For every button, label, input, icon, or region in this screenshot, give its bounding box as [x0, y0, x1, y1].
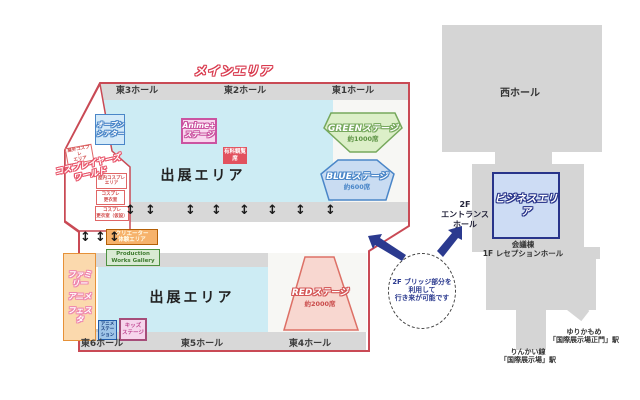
- red-stage-label: REDステージ: [270, 288, 370, 299]
- bridge-note-circle: 2F ブリッジ部分を 利用して 行き来が可能です: [388, 253, 456, 329]
- family-festa-line2: アニメ: [68, 292, 92, 301]
- indoor-cosplay-line2: エリア: [105, 181, 119, 186]
- two-way-arrow-icon: ↕: [109, 231, 120, 244]
- west-hall-label: 西ホール: [470, 88, 570, 100]
- station-leg-center: [516, 310, 546, 350]
- green-stage-seats: 約1000席: [313, 136, 413, 144]
- business-area-box: ビジネスエリア: [492, 172, 560, 239]
- two-way-arrow-icon: ↕: [211, 204, 222, 217]
- exhibit-block-upper: [98, 100, 333, 202]
- blue-stage-label: BLUEステージ: [307, 172, 407, 183]
- two-way-arrow-icon: ↕: [95, 231, 106, 244]
- main-area-label: メインエリア: [183, 64, 283, 78]
- two-way-arrow-icon: ↕: [145, 204, 156, 217]
- business-area-label: ビジネスエリア: [494, 193, 558, 217]
- two-way-arrow-icon: ↕: [325, 204, 336, 217]
- paid-seat-badge: 有料観覧席: [223, 147, 247, 164]
- open-theater-label-line1: オープン: [96, 121, 124, 129]
- exhibit-area-upper-label: 出展エリア: [153, 168, 253, 185]
- entrance-line3: ホール: [438, 220, 492, 230]
- reception-line2: 1F レセプションホール: [478, 249, 568, 258]
- hall-label-east2: 東2ホール: [215, 86, 275, 97]
- conference-block: [486, 252, 596, 310]
- reception-hall-label: 会議棟 1F レセプションホール: [478, 240, 568, 258]
- family-festa-line1: ファミリー: [64, 270, 95, 288]
- two-way-arrow-icon: ↕: [125, 204, 136, 217]
- cosplay-dressing-room-box: コスプレ 更衣室: [96, 190, 125, 205]
- cosplay-dressing-room2-box: コスプレ 更衣室（仮設）: [95, 206, 129, 221]
- venue-map: メインエリア 東3ホール 東2ホール 東1ホール 東6ホール 東5ホール 東4ホ…: [0, 0, 640, 400]
- entrance-line1: 2F: [438, 200, 492, 210]
- exhibit-area-lower-label: 出展エリア: [142, 290, 242, 307]
- family-anime-festa-box: ファミリー アニメ フェスタ: [63, 253, 96, 341]
- two-way-arrow-icon: ↕: [80, 231, 91, 244]
- production-works-gallery-box: Production Works Gallery: [106, 249, 160, 266]
- dressing-room2-line2: 更衣室（仮設）: [96, 214, 128, 219]
- dressing-room-line2: 更衣室: [104, 198, 118, 203]
- west-connector: [495, 152, 552, 164]
- hall-label-east1: 東1ホール: [323, 86, 383, 97]
- two-way-arrow-icon: ↕: [185, 204, 196, 217]
- yurikamome-line2: 「国際展示場正門」駅: [548, 336, 620, 344]
- yurikamome-station-label: ゆりかもめ 「国際展示場正門」駅: [548, 328, 620, 345]
- two-way-arrow-icon: ↕: [239, 204, 250, 217]
- kids-stage-line2: ステージ: [122, 330, 144, 336]
- anime-stage-label-line2: ステージ: [184, 131, 214, 140]
- blue-stage-seats: 約600席: [307, 184, 407, 192]
- kids-stage-box: キッズ ステージ: [119, 318, 147, 341]
- hall-label-east5: 東5ホール: [172, 339, 232, 350]
- open-theater-label-line2: シアター: [96, 130, 124, 138]
- family-festa-line3: フェスタ: [64, 306, 95, 324]
- open-theater-box: オープン シアター: [95, 114, 125, 145]
- hall-label-east3: 東3ホール: [107, 86, 167, 97]
- anime-station-line2: ステーション: [99, 327, 116, 337]
- hall-label-east6: 東6ホール: [72, 339, 132, 350]
- rinkai-station-label: りんかい線 「国際展示場」駅: [490, 348, 566, 365]
- green-stage-label: GREENステージ: [313, 124, 413, 135]
- entrance-hall-label: 2F エントランス ホール: [438, 200, 492, 230]
- conference-notch: [584, 247, 600, 259]
- two-way-arrow-icon: ↕: [267, 204, 278, 217]
- entrance-line2: エントランス: [438, 210, 492, 220]
- anime-stage-box: Anime+ ステージ: [181, 118, 217, 144]
- bridge-note-line3: 行き来が可能です: [395, 295, 449, 303]
- reception-line1: 会議棟: [478, 240, 568, 249]
- production-line2: Works Gallery: [111, 258, 154, 264]
- anime-station-box: アニメ ステーション: [98, 320, 117, 340]
- red-stage-seats: 約2000席: [270, 301, 370, 309]
- rinkai-line2: 「国際展示場」駅: [490, 356, 566, 364]
- hall-label-east4: 東4ホール: [280, 339, 340, 350]
- two-way-arrow-icon: ↕: [295, 204, 306, 217]
- creator-line2: 体験エリア: [118, 237, 146, 243]
